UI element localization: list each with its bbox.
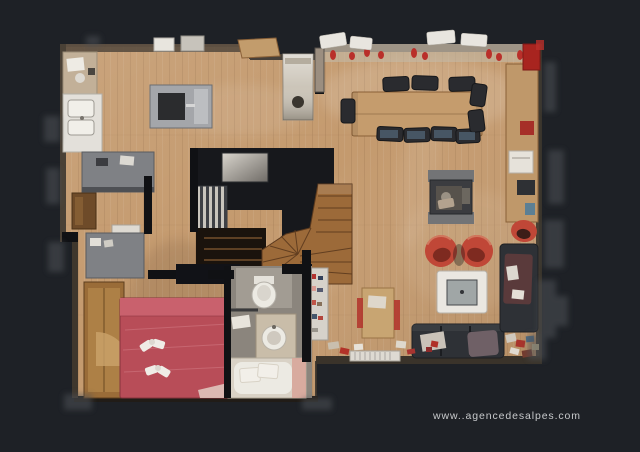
top-wall-appliance-gray [181,36,204,51]
sofa [412,324,504,358]
kitchen-worktop-1 [82,152,154,192]
vanity [256,314,296,364]
bathroom [228,266,312,398]
red-corner-bit [536,40,544,50]
kitchen-sink-basin [68,100,94,117]
side-table [357,288,400,338]
bed [120,298,232,398]
sideboard [506,64,538,222]
hall-radiator [112,225,140,233]
bed-pillow-band [120,298,232,316]
floorplan-dollhouse-view: www..agencedesalpes.com [0,0,640,452]
fireplace [428,170,474,224]
sofa-pillow [467,330,499,358]
sideboard-appliance [509,151,533,173]
chaise-right [500,244,538,332]
screenshot-root: www..agencedesalpes.com [0,0,640,452]
bathtub [228,358,306,398]
kitchen-island-sink [158,93,185,120]
bedroom [84,282,232,398]
entry-bench [238,38,280,58]
stair-mirror [222,153,268,182]
kitchen-dining-divider-wall [315,48,324,92]
agency-watermark: www..agencedesalpes.com [432,410,581,422]
kitchen-faucet [80,116,84,120]
top-wall-appliance-white [154,38,174,51]
